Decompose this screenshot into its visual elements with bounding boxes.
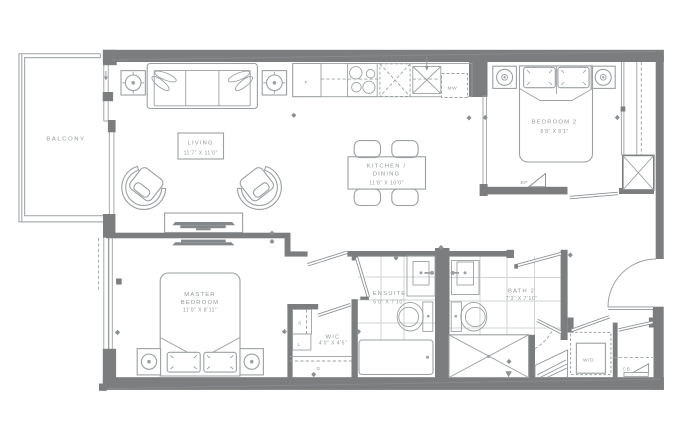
svg-text:F: F bbox=[305, 80, 309, 86]
svg-text:W/D: W/D bbox=[583, 358, 594, 364]
svg-text:KITCHEN /: KITCHEN / bbox=[367, 164, 406, 170]
svg-text:5’0” X 7’10”: 5’0” X 7’10” bbox=[373, 300, 405, 306]
svg-text:BALCONY: BALCONY bbox=[46, 137, 85, 143]
svg-text:L: L bbox=[298, 342, 301, 348]
svg-text:CB: CB bbox=[623, 367, 631, 373]
svg-text:11’7” X 11’0”: 11’7” X 11’0” bbox=[184, 151, 218, 157]
svg-text:BATH 2: BATH 2 bbox=[508, 289, 535, 295]
svg-text:8’8” X 8’1”: 8’8” X 8’1” bbox=[540, 129, 568, 135]
svg-text:11’0” X 8’11”: 11’0” X 8’11” bbox=[183, 308, 217, 314]
svg-text:BEDROOM: BEDROOM bbox=[181, 300, 220, 306]
svg-text:7’3” X 7’10”: 7’3” X 7’10” bbox=[506, 296, 538, 302]
svg-text:ENSUITE: ENSUITE bbox=[373, 291, 407, 297]
svg-text:11’8” X 10’0”: 11’8” X 10’0” bbox=[369, 181, 403, 187]
svg-text:MASTER: MASTER bbox=[184, 292, 215, 298]
svg-text:DINING: DINING bbox=[373, 172, 401, 178]
svg-text:S: S bbox=[298, 321, 302, 327]
svg-text:MW: MW bbox=[448, 86, 458, 92]
svg-text:4’0” X 4’5”: 4’0” X 4’5” bbox=[319, 341, 347, 347]
svg-text:EP: EP bbox=[521, 180, 529, 186]
svg-text:D: D bbox=[317, 366, 321, 372]
svg-text:BEDROOM 2: BEDROOM 2 bbox=[532, 120, 578, 126]
svg-text:LIVING: LIVING bbox=[188, 141, 214, 147]
